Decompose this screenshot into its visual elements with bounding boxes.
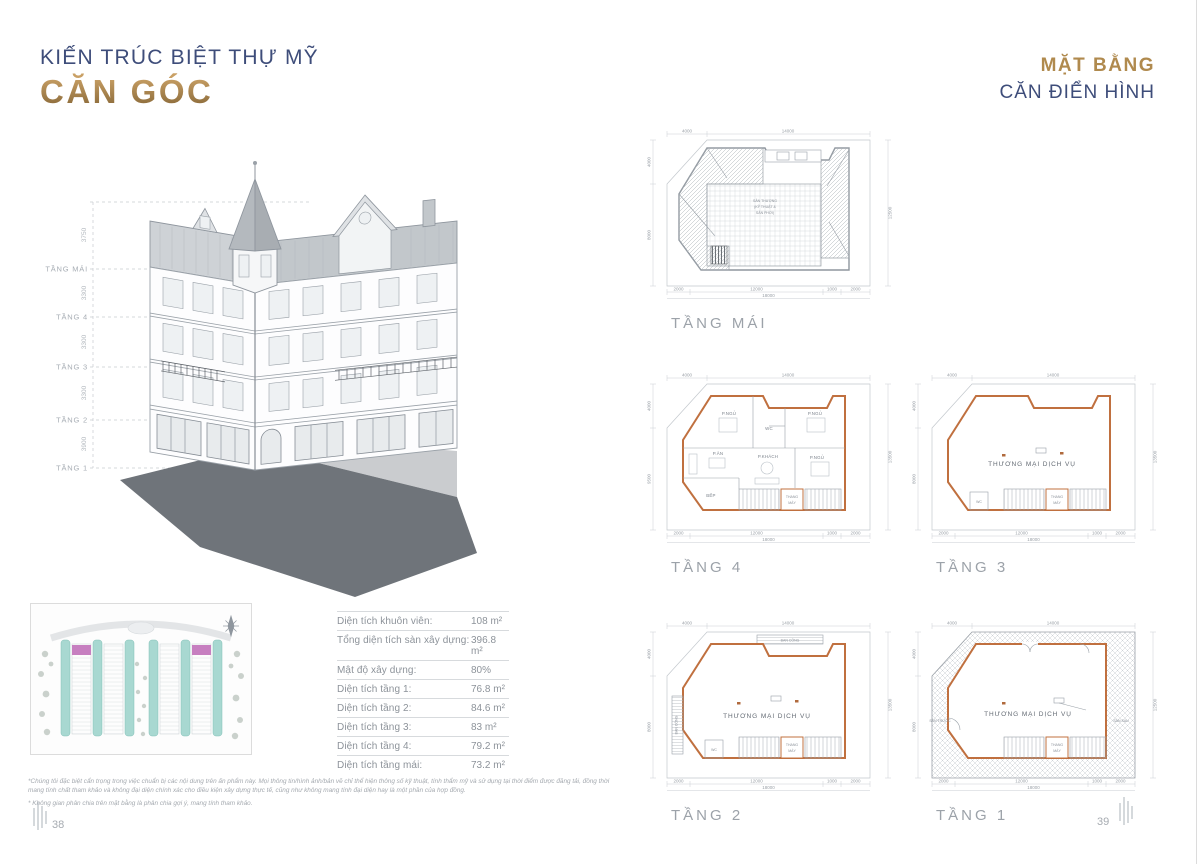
dim-label: 14000 — [1047, 373, 1060, 378]
page-title-subtitle: KIẾN TRÚC BIỆT THỰ MỸ — [40, 46, 319, 70]
dim-label: 12500 — [888, 206, 893, 219]
svg-text:SÂN THƯỢNG: SÂN THƯỢNG — [753, 199, 777, 203]
dim-label: 18000 — [762, 785, 775, 790]
floor-plan-2: 4000 14000 4000 8000 13500 2000 12000 10… — [645, 618, 895, 824]
spec-value: 83 m² — [471, 722, 497, 733]
dim-label: 2000 — [673, 531, 684, 536]
structural-column — [795, 700, 799, 703]
lift-label: THANG — [786, 743, 799, 747]
dim-label: 18000 — [762, 293, 775, 298]
structural-column — [1002, 454, 1006, 457]
spec-value: 76.8 m² — [471, 684, 505, 695]
lift-label: THANG — [786, 495, 799, 499]
dim-label: 14000 — [782, 129, 795, 134]
dim-label: 14000 — [782, 621, 795, 626]
roof-tile-area-right — [821, 148, 849, 258]
dim-label: 1000 — [1092, 531, 1103, 536]
dim-label: 14000 — [782, 373, 795, 378]
floor-plan-title: TẦNG 3 — [936, 559, 1160, 576]
room-label-wc: WC — [976, 500, 982, 504]
brand-reed-logo — [30, 800, 50, 830]
floor-plan-roof-drawing: 4000 14000 4000 8000 12500 2000 12000 10… — [645, 126, 895, 304]
dim-label: 8000 — [912, 473, 917, 484]
dim-label: 12000 — [750, 779, 763, 784]
dim-label: 4000 — [912, 400, 917, 411]
floor-plan-title: TẦNG MÁI — [671, 315, 895, 332]
header-right-block: MẶT BẰNG CĂN ĐIỂN HÌNH — [999, 52, 1155, 106]
dim-label: 2000 — [938, 779, 949, 784]
dim-label: 18000 — [762, 537, 775, 542]
lift-label: MÁY — [1053, 749, 1061, 753]
stair-core: THANG MÁY — [1004, 737, 1106, 758]
dim-label: 1000 — [827, 287, 838, 292]
floor-plan-2-drawing: 4000 14000 4000 8000 13500 2000 12000 10… — [645, 618, 895, 796]
dim-label: 4000 — [647, 400, 652, 411]
dim-label: 2000 — [938, 531, 949, 536]
structural-column — [1002, 702, 1006, 705]
dim-label: 18000 — [1027, 537, 1040, 542]
dim-label: 4000 — [647, 156, 652, 167]
dim-label: 2000 — [1115, 779, 1126, 784]
chimney — [423, 199, 435, 226]
spec-row: Diện tích tầng 3:83 m² — [337, 717, 509, 736]
yard-label-front: SÂN TRƯỚC — [929, 718, 951, 723]
balcony-label: BAN CÔNG — [674, 715, 679, 734]
floor-label: TẦNG MÁI — [45, 264, 88, 274]
floor-plan-roof: 4000 14000 4000 8000 12500 2000 12000 10… — [645, 126, 895, 332]
balcony-label: BAN CÔNG — [781, 638, 800, 643]
spec-row: Diện tích khuôn viên:108 m² — [337, 611, 509, 630]
dim-label: 8000 — [647, 229, 652, 240]
entrance-door-gap — [1022, 642, 1038, 646]
spec-row: Mật độ xây dựng:80% — [337, 660, 509, 679]
floor-label: TẦNG 3 — [56, 362, 88, 372]
dim-label: 2000 — [673, 779, 684, 784]
dim-label: 12000 — [750, 531, 763, 536]
brochure-page: KIẾN TRÚC BIỆT THỰ MỸ CĂN GÓC MẶT BẰNG C… — [0, 0, 1200, 864]
page-title-block: KIẾN TRÚC BIỆT THỰ MỸ CĂN GÓC — [40, 46, 319, 111]
dim-label: 4000 — [682, 373, 693, 378]
site-plan-thumbnail — [30, 603, 252, 755]
spec-table: Diện tích khuôn viên:108 m² Tổng diện tí… — [337, 611, 509, 774]
villa-right-facade — [255, 185, 457, 470]
dim-label: 8000 — [912, 721, 917, 732]
dim-label: 12000 — [1015, 531, 1028, 536]
structural-column — [1060, 452, 1064, 455]
dim-label: 2000 — [1115, 531, 1126, 536]
spec-row: Diện tích tầng mái:73.2 m² — [337, 755, 509, 774]
floor-label: TẦNG 2 — [56, 415, 88, 425]
disclaimer-footnotes: *Chúng tôi đặc biệt cẩn trọng trong việc… — [28, 778, 613, 809]
spec-label: Diện tích khuôn viên: — [337, 616, 471, 627]
lift-label: THANG — [1051, 743, 1064, 747]
spec-value: 396.8 m² — [471, 635, 509, 657]
spec-value: 79.2 m² — [471, 741, 505, 752]
spec-value: 80% — [471, 665, 491, 676]
dim-label: 13500 — [888, 450, 893, 463]
floor-height-dim: 3300 — [81, 334, 88, 349]
floor-label: TẦNG 4 — [56, 312, 88, 322]
spec-label: Diện tích tầng mái: — [337, 760, 471, 771]
spec-label: Diện tích tầng 4: — [337, 741, 471, 752]
structural-column — [737, 702, 741, 705]
dim-label: 14000 — [1047, 621, 1060, 626]
dim-label: 2000 — [673, 287, 684, 292]
floor-plan-title: TẦNG 4 — [671, 559, 895, 576]
room-label-bedroom: P.NGỦ — [722, 411, 736, 416]
floor-height-dim: 3300 — [81, 285, 88, 300]
page-title-main: CĂN GÓC — [40, 73, 213, 111]
dim-label: 4000 — [947, 373, 958, 378]
lift-label: MÁY — [1053, 501, 1061, 505]
spec-value: 84.6 m² — [471, 703, 505, 714]
page-number-left: 38 — [52, 819, 64, 831]
dim-label: 2000 — [850, 287, 861, 292]
spec-row: Diện tích tầng 1:76.8 m² — [337, 679, 509, 698]
floor-height-dim: 3750 — [81, 227, 88, 242]
lift-label: THANG — [1051, 495, 1064, 499]
villa-axonometric-drawing — [105, 135, 535, 605]
arched-entrance — [261, 428, 281, 464]
dim-label: 12000 — [750, 287, 763, 292]
dim-label: 12000 — [1015, 779, 1028, 784]
dim-label: 8000 — [647, 721, 652, 732]
dim-label: 4000 — [647, 648, 652, 659]
floor-plan-3-drawing: 4000 14000 4000 8000 13500 2000 12000 10… — [910, 370, 1160, 548]
dim-label: 9500 — [647, 473, 652, 484]
roof-center-label: SÂN THƯỢNG (KỸ THUẬT & SÂN PHƠI) — [753, 199, 777, 215]
spec-label: Diện tích tầng 3: — [337, 722, 471, 733]
dim-label: 1000 — [1092, 779, 1103, 784]
dim-label: 12500 — [1153, 698, 1158, 711]
spec-label: Diện tích tầng 2: — [337, 703, 471, 714]
footnote-paragraph: * Không gian phân chia trên mặt bằng là … — [28, 800, 613, 809]
site-plan-drawing — [31, 604, 251, 754]
dim-label: 2000 — [850, 779, 861, 784]
stair-core: THANG MÁY — [739, 737, 841, 758]
svg-text:(KỸ THUẬT &: (KỸ THUẬT & — [754, 204, 776, 209]
dim-label: 18000 — [1027, 785, 1040, 790]
dim-label: 13500 — [888, 698, 893, 711]
room-label-wc: WC — [765, 426, 773, 431]
spec-label: Diện tích tầng 1: — [337, 684, 471, 695]
room-label-commercial: THƯƠNG MẠI DỊCH VỤ — [988, 461, 1076, 468]
spec-value: 108 m² — [471, 616, 502, 627]
floor-plan-3: 4000 14000 4000 8000 13500 2000 12000 10… — [910, 370, 1160, 576]
floor-plan-1: 4000 14000 4000 8000 12500 2000 12000 10… — [910, 618, 1160, 824]
page-edge-divider — [1196, 0, 1197, 864]
spec-value: 73.2 m² — [471, 760, 505, 771]
floor-height-dim: 3300 — [81, 385, 88, 400]
floor-plan-4-drawing: 4000 14000 4000 9500 13500 2000 12000 10… — [645, 370, 895, 548]
lift-label: MÁY — [788, 749, 796, 753]
dim-label: 13500 — [1153, 450, 1158, 463]
roof-skylight — [711, 246, 727, 264]
room-label-commercial: THƯƠNG MẠI DỊCH VỤ — [723, 713, 811, 720]
dim-label: 4000 — [947, 621, 958, 626]
room-label-commercial: THƯƠNG MẠI DỊCH VỤ — [984, 711, 1072, 718]
floor-label: TẦNG 1 — [56, 463, 88, 473]
lift-label: MÁY — [788, 501, 796, 505]
highlighted-corner-unit-left — [72, 645, 91, 655]
spec-row: Tổng diện tích sàn xây dựng:396.8 m² — [337, 630, 509, 660]
floor-plan-1-drawing: 4000 14000 4000 8000 12500 2000 12000 10… — [910, 618, 1160, 796]
highlighted-corner-unit-right — [192, 645, 211, 655]
spec-label: Tổng diện tích sàn xây dựng: — [337, 635, 471, 657]
stair-core: THANG MÁY — [1004, 489, 1106, 510]
dim-label: 4000 — [682, 129, 693, 134]
header-right-line1: MẶT BẰNG — [999, 52, 1155, 79]
dim-label: 1000 — [827, 779, 838, 784]
dim-label: 4000 — [682, 621, 693, 626]
header-right-line2: CĂN ĐIỂN HÌNH — [999, 79, 1155, 106]
room-label-bedroom: P.NGỦ — [810, 455, 824, 460]
footnote-paragraph: *Chúng tôi đặc biệt cẩn trọng trong việc… — [28, 778, 613, 795]
room-label-dining: P.ĂN — [713, 451, 723, 456]
spec-row: Diện tích tầng 2:84.6 m² — [337, 698, 509, 717]
dim-label: 1000 — [827, 531, 838, 536]
svg-text:SÂN PHƠI): SÂN PHƠI) — [756, 211, 774, 215]
floor-height-dim: 3900 — [81, 436, 88, 451]
yard-label-back: SÂN SAU — [1113, 719, 1129, 723]
room-label-bedroom: P.NGỦ — [808, 411, 822, 416]
floor-plan-title: TẦNG 1 — [936, 807, 1160, 824]
floor-plan-title: TẦNG 2 — [671, 807, 895, 824]
spec-row: Diện tích tầng 4:79.2 m² — [337, 736, 509, 755]
room-label-wc: WC — [711, 748, 717, 752]
room-label-kitchen: BẾP — [706, 493, 715, 498]
dim-label: 2000 — [850, 531, 861, 536]
spec-label: Mật độ xây dựng: — [337, 665, 471, 676]
floor-plan-4: 4000 14000 4000 9500 13500 2000 12000 10… — [645, 370, 895, 576]
dim-label: 4000 — [912, 648, 917, 659]
stair-core: THANG MÁY — [739, 489, 841, 510]
room-label-living: P.KHÁCH — [758, 454, 778, 459]
